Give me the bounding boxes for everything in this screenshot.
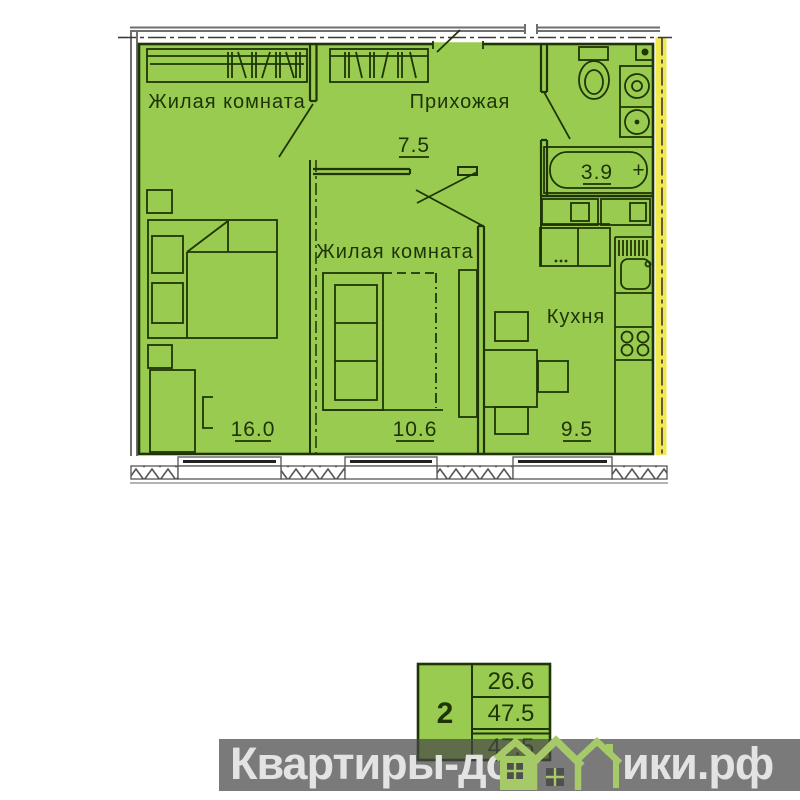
room-area-living2: 10.6 <box>393 418 438 441</box>
room-label-living2: Жилая комната <box>316 241 473 263</box>
floor-plan-page: Жилая комната 16.0 Жилая комната 10.6 Пр… <box>0 0 800 800</box>
table-area-1: 26.6 <box>488 668 535 695</box>
floor-plan-canvas: Жилая комната 16.0 Жилая комната 10.6 Пр… <box>0 0 800 800</box>
table-rooms-count: 2 <box>437 697 454 730</box>
room-area-kitchen: 9.5 <box>561 418 593 441</box>
table-area-2: 47.5 <box>488 700 535 727</box>
room-label-hallway: Прихожая <box>410 91 511 113</box>
watermark: Квартиры-до ики.рф <box>219 738 800 791</box>
room-label-living1: Жилая комната <box>148 91 305 113</box>
room-area-living1: 16.0 <box>231 418 276 441</box>
room-label-kitchen: Кухня <box>547 306 606 328</box>
bottom-windows-band <box>131 457 667 479</box>
accent-wall-yellow <box>656 37 667 455</box>
room-area-bathroom: 3.9 <box>581 161 613 184</box>
watermark-text-left: Квартиры-до <box>230 738 512 789</box>
bath-faucet-mark: + <box>632 159 645 182</box>
room-area-hallway: 7.5 <box>398 134 430 157</box>
watermark-text-right: ики.рф <box>622 738 773 789</box>
